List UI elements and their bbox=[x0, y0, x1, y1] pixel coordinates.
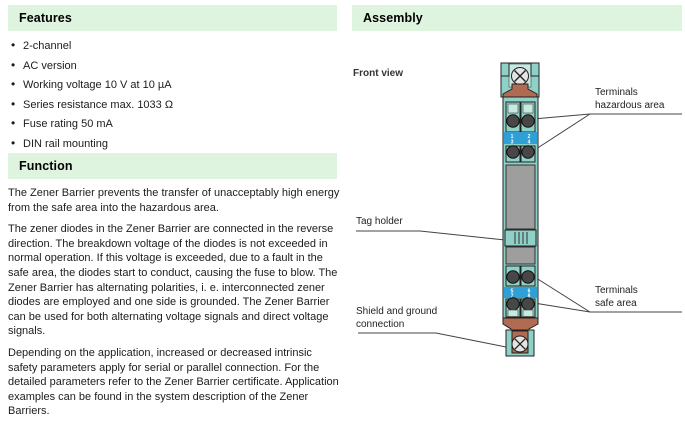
feature-item: AC version bbox=[8, 61, 337, 73]
terminal-hole bbox=[522, 298, 534, 310]
terminal-number: 2 bbox=[528, 134, 531, 140]
leader-terminals-safe-2 bbox=[534, 303, 590, 312]
callout-tag-holder: Tag holder bbox=[356, 216, 403, 229]
feature-item: DIN rail mounting bbox=[8, 139, 337, 151]
terminals-hazardous-block: 1 3 2 4 bbox=[504, 102, 537, 162]
feature-item: 2-channel bbox=[8, 41, 337, 53]
terminal-hole bbox=[522, 271, 534, 283]
features-list: 2-channel AC version Working voltage 10 … bbox=[8, 41, 337, 158]
front-view-label: Front view bbox=[353, 68, 403, 81]
bottom-cap bbox=[503, 318, 538, 356]
ground-clamp bbox=[512, 331, 528, 353]
terminal-number: 6 bbox=[528, 289, 531, 295]
terminal-number-band-safe bbox=[504, 287, 537, 298]
terminal-number: 3 bbox=[511, 140, 514, 146]
function-paragraph: Depending on the application, increased … bbox=[8, 346, 340, 419]
callout-terminals-hazardous: Terminals hazardous area bbox=[595, 87, 665, 112]
terminal-number: 5 bbox=[511, 289, 514, 295]
callout-shield-ground: Shield and ground connection bbox=[356, 306, 437, 331]
terminal-number-band-hazardous bbox=[504, 132, 537, 144]
terminal-number: 4 bbox=[528, 140, 531, 146]
leader-terminals-hazardous-1 bbox=[533, 114, 682, 119]
callout-terminals-safe: Terminals safe area bbox=[595, 285, 638, 310]
label-area-lower bbox=[506, 247, 535, 264]
feature-item: Working voltage 10 V at 10 µA bbox=[8, 80, 337, 92]
datasheet-page: Features Assembly Function 2-channel AC … bbox=[0, 0, 685, 426]
zener-barrier-device: 1 3 2 4 bbox=[501, 63, 539, 356]
top-recess bbox=[509, 64, 531, 87]
feature-item: Fuse rating 50 mA bbox=[8, 119, 337, 131]
terminal-hole bbox=[522, 115, 534, 127]
terminal-number: 7 bbox=[511, 294, 514, 300]
terminal-hole bbox=[522, 146, 534, 158]
tag-holder bbox=[505, 230, 536, 246]
bottom-copper-block bbox=[503, 318, 538, 340]
terminal-hole bbox=[507, 146, 519, 158]
terminals-safe-block: 5 7 6 8 bbox=[504, 266, 537, 317]
label-area-upper bbox=[506, 165, 535, 229]
function-paragraph: The zener diodes in the Zener Barrier ar… bbox=[8, 222, 340, 339]
feature-item: Series resistance max. 1033 Ω bbox=[8, 100, 337, 112]
function-text-block: The Zener Barrier prevents the transfer … bbox=[8, 186, 340, 426]
assembly-section-header: Assembly bbox=[352, 5, 682, 31]
leader-terminals-hazardous-2 bbox=[533, 114, 590, 151]
top-cap bbox=[501, 63, 539, 100]
screw-icon-top bbox=[512, 68, 529, 85]
top-copper-block bbox=[503, 84, 537, 100]
function-paragraph: The Zener Barrier prevents the transfer … bbox=[8, 186, 340, 215]
terminal-number: 1 bbox=[511, 134, 514, 140]
terminal-hole bbox=[507, 271, 519, 283]
terminal-number: 8 bbox=[528, 294, 531, 300]
device-body bbox=[503, 97, 538, 318]
leader-tag-holder bbox=[356, 231, 505, 240]
terminal-hole bbox=[507, 298, 519, 310]
leader-shield-ground bbox=[358, 333, 506, 347]
terminal-hole bbox=[507, 115, 519, 127]
screw-icon-bottom bbox=[512, 336, 528, 352]
features-section-header: Features bbox=[8, 5, 337, 31]
